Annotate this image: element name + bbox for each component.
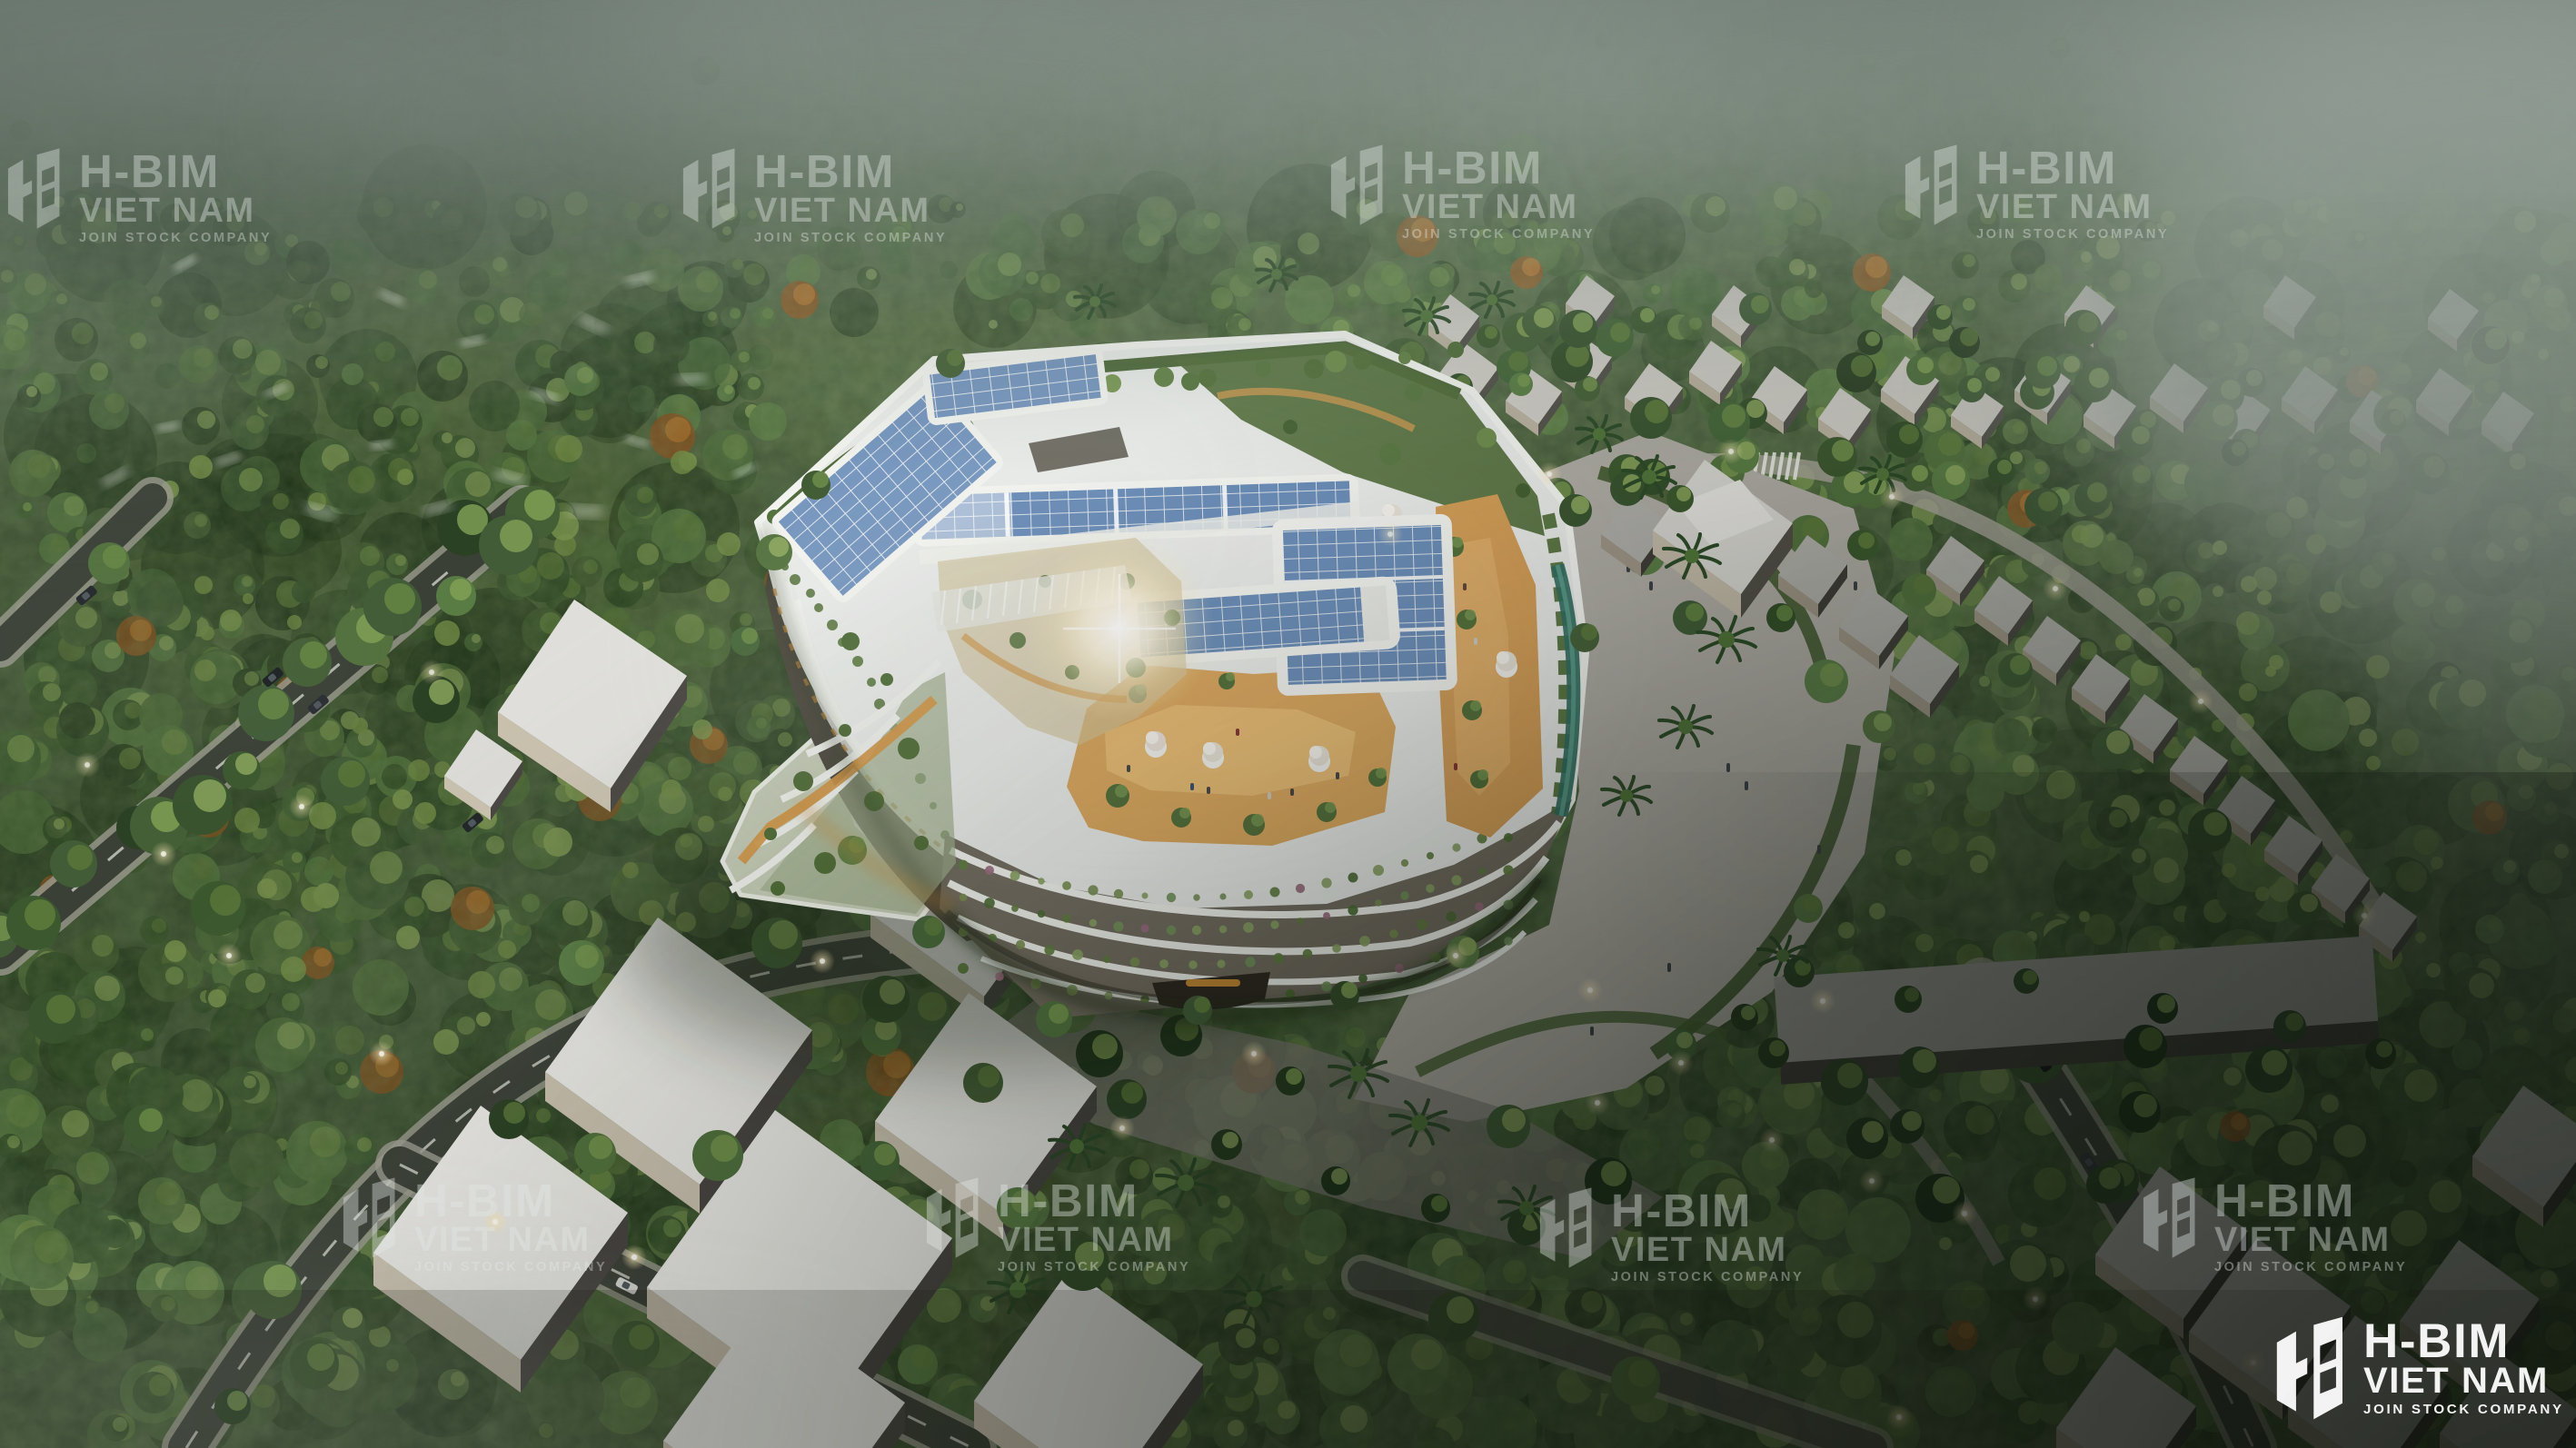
svg-text:JOIN STOCK COMPANY: JOIN STOCK COMPANY <box>1976 227 2169 242</box>
svg-text:H-BIM: H-BIM <box>1402 142 1543 193</box>
svg-text:H-BIM: H-BIM <box>998 1175 1139 1226</box>
svg-text:JOIN STOCK COMPANY: JOIN STOCK COMPANY <box>1611 1270 1804 1284</box>
svg-text:VIET NAM: VIET NAM <box>1976 188 2153 226</box>
svg-text:H-BIM: H-BIM <box>1611 1185 1752 1236</box>
svg-text:VIET NAM: VIET NAM <box>998 1221 1174 1259</box>
svg-text:H-BIM: H-BIM <box>2214 1175 2355 1226</box>
svg-text:H-BIM: H-BIM <box>1976 142 2117 193</box>
svg-text:VIET NAM: VIET NAM <box>414 1221 591 1259</box>
svg-text:VIET NAM: VIET NAM <box>2214 1221 2391 1259</box>
svg-text:JOIN STOCK COMPANY: JOIN STOCK COMPANY <box>1402 227 1595 242</box>
svg-text:H-BIM: H-BIM <box>754 145 895 197</box>
svg-text:JOIN STOCK COMPANY: JOIN STOCK COMPANY <box>998 1260 1190 1274</box>
svg-text:H-BIM: H-BIM <box>414 1175 555 1226</box>
svg-text:VIET NAM: VIET NAM <box>79 192 255 230</box>
svg-text:VIET NAM: VIET NAM <box>754 192 930 230</box>
svg-text:H-BIM: H-BIM <box>79 145 220 197</box>
svg-text:VIET NAM: VIET NAM <box>2363 1361 2549 1401</box>
svg-text:VIET NAM: VIET NAM <box>1611 1231 1787 1269</box>
svg-text:JOIN STOCK COMPANY: JOIN STOCK COMPANY <box>754 231 947 245</box>
svg-text:JOIN STOCK COMPANY: JOIN STOCK COMPANY <box>2363 1402 2564 1417</box>
svg-text:JOIN STOCK COMPANY: JOIN STOCK COMPANY <box>414 1260 607 1274</box>
svg-text:JOIN STOCK COMPANY: JOIN STOCK COMPANY <box>79 231 272 245</box>
svg-text:VIET NAM: VIET NAM <box>1402 188 1578 226</box>
svg-text:JOIN STOCK COMPANY: JOIN STOCK COMPANY <box>2214 1260 2407 1274</box>
